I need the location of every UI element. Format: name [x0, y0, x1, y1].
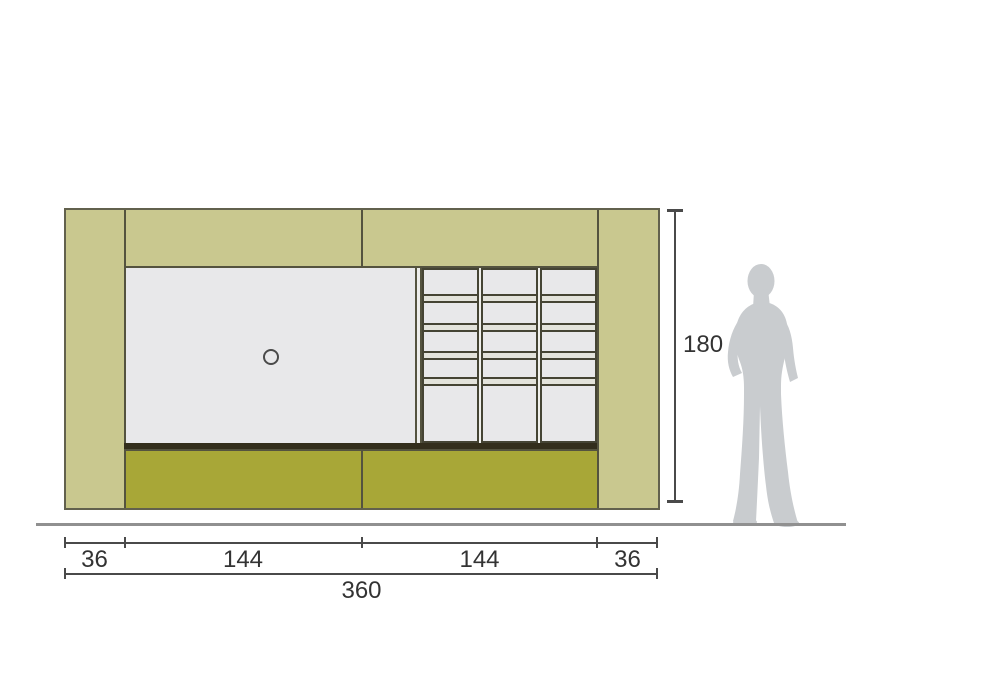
- shelf-cell: [424, 303, 477, 323]
- shelf-cell: [483, 332, 536, 351]
- shelf-board: [424, 294, 477, 303]
- shelf-unit: [422, 268, 597, 443]
- shelf-column: [422, 268, 479, 443]
- wall-unit: [64, 208, 660, 510]
- top-panel-right: [363, 210, 597, 266]
- height-dimension-cap-top: [667, 209, 683, 212]
- shelf-cell: [542, 386, 595, 441]
- shelf-board: [542, 377, 595, 386]
- total-width-dimension-line: [65, 573, 658, 575]
- shelf-column: [540, 268, 597, 443]
- segment-width-label: 144: [124, 548, 362, 572]
- base-panel-left: [126, 451, 361, 508]
- shelf-cell: [424, 360, 477, 377]
- total-width-label: 360: [65, 579, 658, 603]
- shelf-board: [483, 323, 536, 332]
- shelf-cell: [424, 332, 477, 351]
- shelf-column: [481, 268, 538, 443]
- height-dimension-label: 180: [683, 333, 723, 357]
- shelf-board: [542, 351, 595, 360]
- shelf-board: [424, 351, 477, 360]
- segment-width-label: 36: [65, 548, 124, 572]
- height-dimension-cap-bottom: [667, 500, 683, 503]
- human-figure-silhouette-icon: [720, 262, 818, 530]
- side-panel-right: [599, 210, 658, 508]
- dimension-tick: [656, 568, 658, 579]
- cable-hole-icon: [263, 349, 279, 365]
- shelf-cell: [542, 332, 595, 351]
- sliding-back-panel: [126, 268, 415, 443]
- shelf-cell: [542, 303, 595, 323]
- shelf-cell: [483, 303, 536, 323]
- furniture-elevation-diagram: 180 36 144 144 36 360: [0, 0, 1000, 699]
- bottom-shelf-board: [124, 443, 597, 449]
- dimension-tick: [64, 537, 66, 548]
- shelf-board: [483, 351, 536, 360]
- base-panel-right: [363, 451, 597, 508]
- top-panel-left: [126, 210, 361, 266]
- shelf-cell: [542, 270, 595, 294]
- shelf-board: [424, 323, 477, 332]
- segment-width-label: 144: [362, 548, 597, 572]
- shelf-cell: [542, 360, 595, 377]
- dimension-tick: [64, 568, 66, 579]
- shelf-board: [424, 377, 477, 386]
- shelf-board: [483, 294, 536, 303]
- dimension-tick: [361, 537, 363, 548]
- segment-width-label: 36: [597, 548, 658, 572]
- panel-gap: [417, 268, 420, 443]
- shelf-board: [542, 294, 595, 303]
- shelf-cell: [483, 386, 536, 441]
- height-dimension-line: [674, 210, 676, 502]
- shelf-cell: [424, 270, 477, 294]
- shelf-board: [483, 377, 536, 386]
- shelf-cell: [424, 386, 477, 441]
- dimension-tick: [656, 537, 658, 548]
- shelf-cell: [483, 360, 536, 377]
- ground-line: [36, 523, 846, 526]
- shelf-board: [542, 323, 595, 332]
- dimension-tick: [596, 537, 598, 548]
- dimension-tick: [124, 537, 126, 548]
- side-panel-left: [66, 210, 124, 508]
- shelf-cell: [483, 270, 536, 294]
